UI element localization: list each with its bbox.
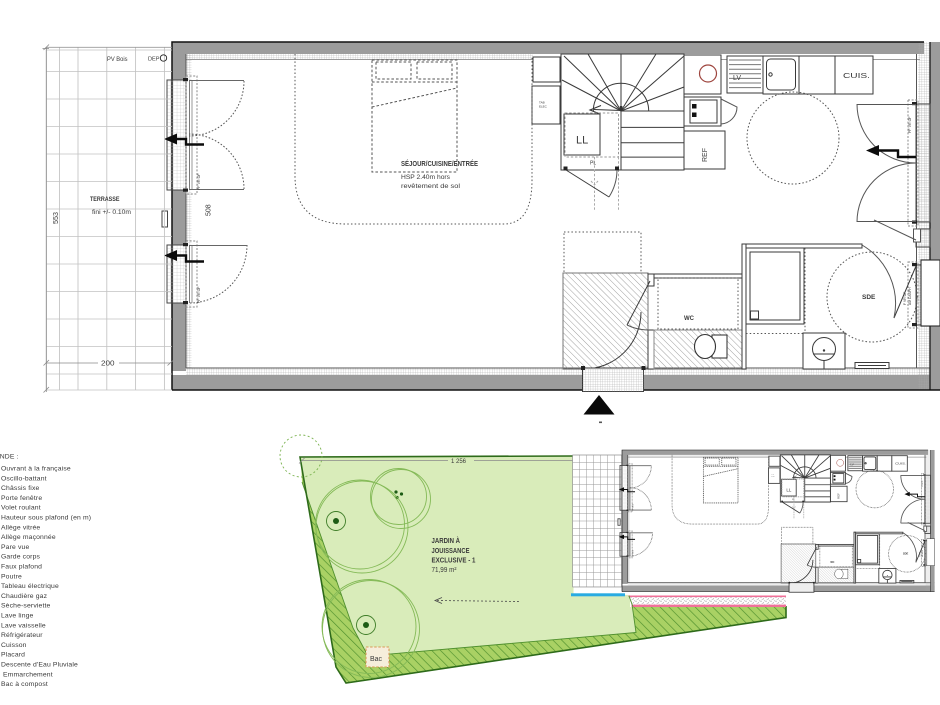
svg-text:TERRASSE: TERRASSE bbox=[90, 196, 120, 203]
svg-text:Réfrigérateur: Réfrigérateur bbox=[1, 632, 43, 639]
svg-text:WC: WC bbox=[684, 315, 694, 322]
svg-text:Oscillo-battant: Oscillo-battant bbox=[1, 475, 47, 482]
svg-text:Allège vitrée: Allège vitrée bbox=[1, 524, 40, 531]
svg-text:508: 508 bbox=[206, 204, 213, 216]
svg-text:F VR OF: F VR OF bbox=[903, 292, 907, 305]
svg-text:revêtement de sol: revêtement de sol bbox=[401, 183, 461, 190]
svg-text:Descente d'Eau Pluviale: Descente d'Eau Pluviale bbox=[1, 662, 78, 669]
svg-text:PF VR OF: PF VR OF bbox=[197, 173, 201, 190]
svg-text:CUIS.: CUIS. bbox=[843, 73, 870, 80]
svg-text:Cuisson: Cuisson bbox=[1, 642, 27, 649]
svg-text:PF VR OF: PF VR OF bbox=[197, 286, 201, 303]
svg-text:Chaudière gaz: Chaudière gaz bbox=[1, 593, 48, 600]
svg-text:Hauteur sous plafond (en m): Hauteur sous plafond (en m) bbox=[1, 515, 91, 522]
svg-text:Lave linge: Lave linge bbox=[1, 613, 34, 620]
svg-text:LL: LL bbox=[576, 135, 588, 147]
svg-text:Volet roulant: Volet roulant bbox=[1, 505, 41, 512]
svg-text:Poutre: Poutre bbox=[1, 573, 22, 580]
svg-text:Bac: Bac bbox=[370, 656, 383, 663]
svg-text:Faux plafond: Faux plafond bbox=[1, 564, 42, 571]
svg-text:Tableau électrique: Tableau électrique bbox=[1, 583, 59, 590]
svg-text:553: 553 bbox=[51, 212, 60, 224]
svg-text:Pare vue: Pare vue bbox=[1, 544, 29, 551]
svg-text:Ouvrant à la française: Ouvrant à la française bbox=[1, 466, 71, 473]
svg-text:Bac à compost: Bac à compost bbox=[1, 681, 48, 688]
svg-text:1 256: 1 256 bbox=[451, 459, 467, 465]
svg-text:Châssis fixe: Châssis fixe bbox=[1, 485, 40, 492]
svg-text:PV Bois: PV Bois bbox=[107, 56, 128, 63]
svg-text:fini +/- 0.10m: fini +/- 0.10m bbox=[92, 209, 131, 216]
svg-text:DEP: DEP bbox=[148, 57, 160, 63]
svg-text:Allège maçonnée: Allège maçonnée bbox=[1, 534, 56, 541]
svg-text:SDE: SDE bbox=[862, 294, 876, 301]
svg-text:Emmarchement: Emmarchement bbox=[3, 671, 53, 678]
svg-text:HSP 2.40m hors: HSP 2.40m hors bbox=[401, 174, 451, 181]
svg-text:PL: PL bbox=[590, 161, 596, 167]
svg-text:REF: REF bbox=[702, 148, 709, 162]
svg-text:JARDIN À: JARDIN À bbox=[432, 536, 461, 545]
svg-text:AM DASPH: AM DASPH bbox=[908, 287, 912, 305]
svg-text:Lave vaisselle: Lave vaisselle bbox=[1, 622, 46, 629]
svg-text:200: 200 bbox=[101, 359, 115, 368]
svg-text:ELEC: ELEC bbox=[539, 105, 548, 109]
svg-text:LV: LV bbox=[733, 75, 741, 82]
svg-text:LÉGENDE :: LÉGENDE : bbox=[0, 452, 19, 461]
svg-text:JOUISSANCE: JOUISSANCE bbox=[432, 548, 470, 555]
svg-text:Sèche-serviette: Sèche-serviette bbox=[1, 603, 51, 610]
svg-text:Placard: Placard bbox=[1, 652, 25, 659]
svg-text:PF VR OF: PF VR OF bbox=[908, 116, 912, 133]
svg-text:Garde corps: Garde corps bbox=[1, 554, 41, 561]
svg-text:EXCLUSIVE - 1: EXCLUSIVE - 1 bbox=[432, 558, 476, 565]
svg-text:SÉJOUR/CUISINE/ENTRÉE: SÉJOUR/CUISINE/ENTRÉE bbox=[401, 159, 478, 168]
svg-text:Porte fenêtre: Porte fenêtre bbox=[1, 495, 42, 502]
svg-text:71,99 m²: 71,99 m² bbox=[432, 567, 458, 574]
